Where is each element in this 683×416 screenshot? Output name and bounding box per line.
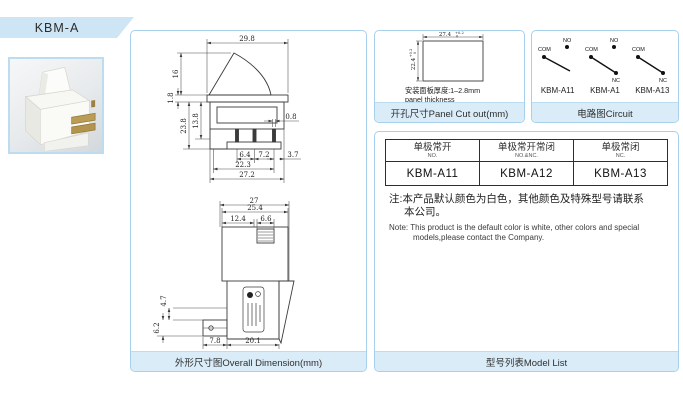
side-view-dims: [157, 201, 289, 349]
cutout-width: 27.4: [439, 32, 452, 38]
overall-dimension-caption: 外形尺寸图Overall Dimension(mm): [131, 351, 366, 371]
dim-arm-height: 4.7: [160, 295, 168, 306]
cutout-drawing: 27.4 +0.2 0 22.4 +0.2 0 安装面板厚度:1–2.8mm p…: [375, 31, 522, 105]
com-label: COM: [538, 47, 551, 53]
no-label: NO: [563, 38, 572, 44]
dim-pin-width: 0.8: [285, 113, 296, 121]
front-view: [207, 53, 288, 149]
model-cell: KBM-A13: [574, 162, 668, 186]
note-cn-line1: 注:本产品默认颜色为白色，其他颜色及特殊型号请联系: [389, 193, 670, 206]
side-view: [203, 227, 294, 343]
header-no: 单极常开 NO.: [386, 140, 480, 162]
dim-pin-span: 22.3: [235, 161, 251, 169]
dim-slot-width: 6.6: [260, 215, 272, 223]
circuit-caption: 电路图Circuit: [532, 102, 678, 122]
dim-arm-length: 7.8: [209, 337, 220, 345]
model-cell: KBM-A12: [480, 162, 574, 186]
dim-window-height: 13.8: [192, 113, 200, 129]
note-en-line1: Note: This product is the default color …: [389, 223, 670, 233]
color-note: 注:本产品默认颜色为白色，其他颜色及特殊型号请联系 本公司。 Note: Thi…: [389, 193, 670, 243]
model-table-header-row: 单极常开 NO. 单极常开常闭 NO.&NC. 单极常闭 NC.: [386, 140, 668, 162]
nc-label: NC: [612, 78, 620, 84]
model-list-caption: 型号列表Model List: [375, 351, 678, 371]
no-label: NO: [610, 38, 619, 44]
cutout-width-tol-lower: 0: [456, 35, 459, 39]
com-label: COM: [585, 47, 598, 53]
circuit-item-kbm-a11: COM NO KBM-A11: [535, 35, 581, 95]
circuit-item-kbm-a13: COM NC KBM-A13: [629, 35, 675, 95]
note-en-line2: models,please contact the Company.: [389, 233, 670, 243]
circuit-symbol-no-nc: COM NO NC: [583, 35, 627, 85]
cutout-height: 22.4: [411, 57, 417, 70]
overall-dimension-panel: 29.8 16 1.8 23.8 13.8 0.8 6.4 7.2 3.7 22…: [130, 30, 367, 372]
model-banner: KBM-A: [0, 17, 134, 38]
circuit-symbol-nc: COM NC: [630, 35, 674, 85]
dim-body-height: 23.8: [180, 118, 188, 134]
dim-top-width: 29.8: [239, 35, 255, 43]
switch-illustration: [11, 60, 101, 151]
model-list-panel: 单极常开 NO. 单极常开常闭 NO.&NC. 单极常闭 NC. KBM-A11…: [374, 131, 679, 372]
circuit-model-label: KBM-A11: [541, 86, 575, 95]
panel-cutout-panel: 27.4 +0.2 0 22.4 +0.2 0 安装面板厚度:1–2.8mm p…: [374, 30, 525, 123]
model-table: 单极常开 NO. 单极常开常闭 NO.&NC. 单极常闭 NC. KBM-A11…: [385, 139, 668, 186]
dim-body-width: 27.2: [239, 171, 255, 179]
dim-pin-pitch-left: 6.4: [239, 151, 251, 159]
cutout-height-tol-lower: 0: [413, 51, 417, 54]
product-photo: [8, 57, 104, 154]
dim-arm-thickness: 6.2: [153, 322, 161, 333]
header-nc: 单极常闭 NC.: [574, 140, 668, 162]
dim-pin-edge: 3.7: [287, 151, 298, 159]
circuit-item-kbm-a1: COM NO NC KBM-A1: [582, 35, 628, 95]
dim-collar: 1.8: [167, 92, 175, 103]
dim-pin-pitch-right: 7.2: [258, 151, 269, 159]
note-cn-line2: 本公司。: [389, 206, 670, 219]
dim-side-body-width: 25.4: [247, 204, 263, 212]
dim-left-section: 12.4: [230, 215, 246, 223]
com-label: COM: [632, 47, 645, 53]
model-banner-label: KBM-A: [35, 21, 80, 35]
circuit-model-label: KBM-A1: [590, 86, 620, 95]
circuit-row: COM NO KBM-A11 COM NO NC KBM-A1 COM: [532, 31, 678, 95]
circuit-symbol-no: COM NO: [536, 35, 580, 85]
dim-actuator-height: 16: [172, 69, 180, 78]
model-table-data-row: KBM-A11 KBM-A12 KBM-A13: [386, 162, 668, 186]
dimension-drawing: 29.8 16 1.8 23.8 13.8 0.8 6.4 7.2 3.7 22…: [131, 31, 367, 354]
header-no-nc: 单极常开常闭 NO.&NC.: [480, 140, 574, 162]
circuit-model-label: KBM-A13: [635, 86, 669, 95]
dim-body-depth: 20.1: [245, 337, 261, 345]
nc-label: NC: [659, 78, 667, 84]
panel-cutout-caption: 开孔尺寸Panel Cut out(mm): [375, 102, 524, 122]
panel-thickness-cn: 安装面板厚度:1–2.8mm: [405, 86, 480, 95]
model-cell: KBM-A11: [386, 162, 480, 186]
circuit-panel: COM NO KBM-A11 COM NO NC KBM-A1 COM: [531, 30, 679, 123]
